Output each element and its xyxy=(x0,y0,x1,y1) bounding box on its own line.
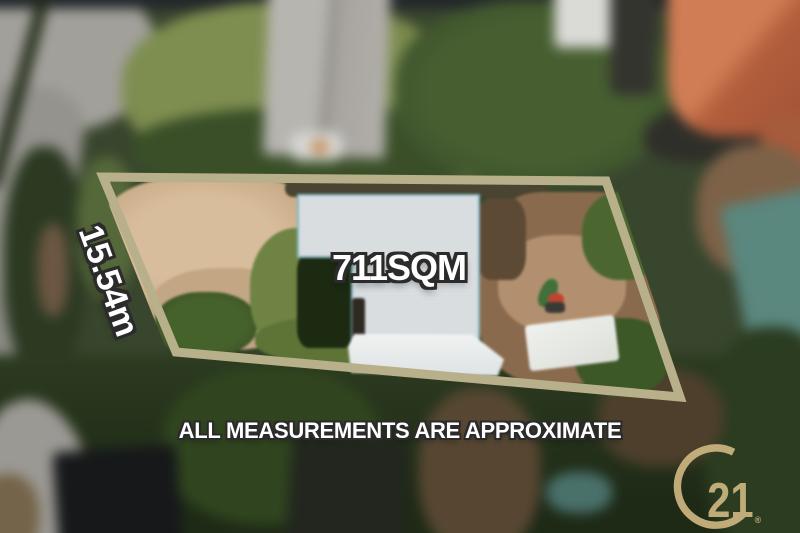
century21-logo: 21 ® xyxy=(664,440,776,533)
lot-area-label: 711SQM xyxy=(332,247,466,289)
c21-number: 21 xyxy=(707,473,754,528)
c21-registered-mark: ® xyxy=(755,515,762,525)
aerial-photo-canvas: 711SQM 15.54m ALL MEASUREMENTS ARE APPRO… xyxy=(0,0,800,533)
measurements-disclaimer: ALL MEASUREMENTS ARE APPROXIMATE xyxy=(179,418,622,444)
